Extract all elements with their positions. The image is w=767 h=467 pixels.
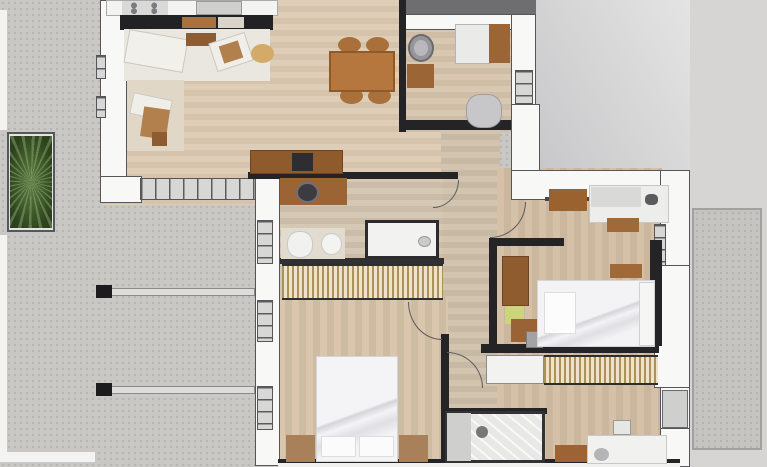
sideboard-vase (292, 153, 313, 171)
washing-machine-drum (414, 40, 428, 56)
railing-lower-bar (100, 386, 255, 394)
bed-right-headboard (639, 282, 655, 346)
wall-living-bottom-corner (100, 176, 142, 203)
utility-cabinet-right (489, 24, 510, 63)
closet-slatted-bathroom (282, 264, 443, 300)
planter-plant (10, 136, 52, 228)
kitchen-stove (122, 1, 168, 15)
desk-room-cabinet (549, 189, 587, 211)
shower-head (476, 426, 488, 438)
wall-cut-top-utility (403, 0, 536, 15)
wall-bedroom-right-top (489, 238, 564, 246)
left-white-strip-bottom (0, 235, 7, 452)
kitchen-sink (196, 1, 242, 15)
bedroom-right-bench (610, 264, 642, 278)
bath-mat-brown (555, 445, 588, 462)
bathroom-stool (613, 420, 631, 435)
utility-counter (455, 24, 491, 64)
floor-plan-stage (0, 0, 767, 467)
desk-room-desk-top (591, 187, 641, 207)
window-left-upper (96, 55, 106, 79)
window-lowerleft-2 (257, 300, 273, 342)
nightstand-left (286, 435, 315, 462)
toilet (287, 231, 313, 258)
bathroom-basin-dark (296, 182, 319, 203)
window-utility-right (515, 70, 533, 104)
window-left-lower (96, 96, 106, 118)
window-lowerleft-3 (257, 386, 273, 430)
wall-dining-utility (399, 0, 406, 132)
bottom-white-strip (0, 452, 95, 462)
wall-hallway-right (489, 238, 497, 352)
railing-upper-bar (100, 288, 255, 296)
bed-middle-pillow-right (359, 436, 394, 457)
railing-upper-cap (96, 285, 112, 298)
wall-pillar-mid-right (511, 104, 540, 178)
bathroom-right-sink (594, 448, 609, 461)
window-living-south (140, 178, 258, 200)
utility-cabinet-left (407, 64, 434, 88)
courtyard-notch (533, 0, 690, 172)
cutting-board (182, 17, 216, 28)
desk-room-bench (607, 218, 639, 232)
bathtub-drain (418, 236, 431, 247)
bed-right-pillow (544, 292, 576, 334)
side-table-small (152, 132, 167, 146)
closet-slatted-bedroom-right (544, 355, 658, 385)
wardrobe-right-bedroom (502, 256, 529, 306)
right-patio-panel (692, 208, 762, 450)
door-right-patio-glass (662, 390, 688, 428)
railing-lower-cap (96, 383, 112, 396)
shelf-white-bedroom-right (486, 355, 544, 384)
desk-knob (645, 194, 658, 205)
nightstand-right (399, 435, 428, 462)
shower-side-panel (447, 413, 471, 461)
counter-tray (218, 17, 244, 28)
dining-table (329, 51, 395, 92)
bathroom-round-sink (321, 233, 342, 255)
bed-middle-pillow-left (321, 436, 356, 457)
left-white-strip-top (0, 10, 7, 130)
towel-pile (466, 94, 502, 128)
window-lowerleft-1 (257, 220, 273, 264)
pouf-round (251, 44, 274, 63)
